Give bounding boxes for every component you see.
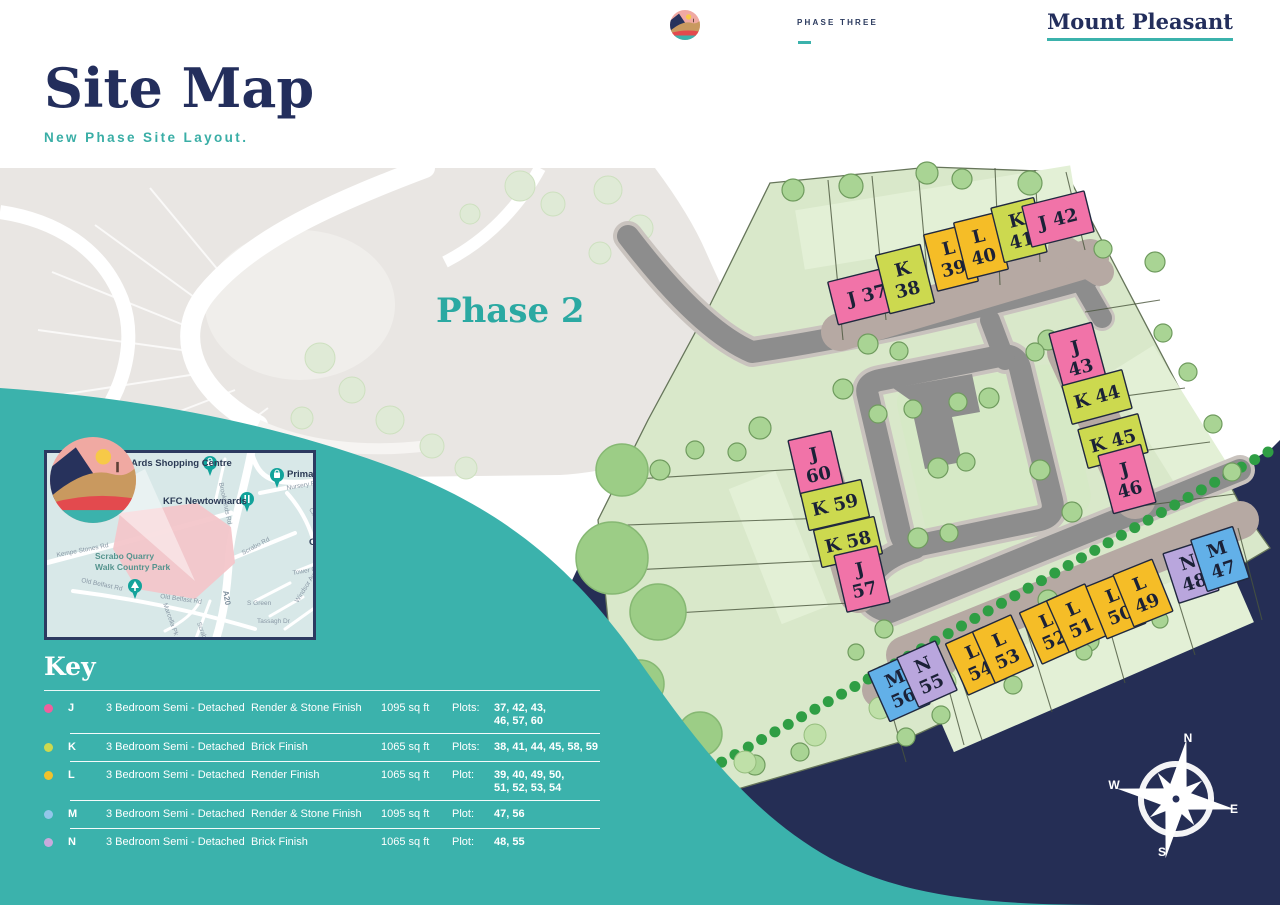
key-description: 3 Bedroom Semi - Detached [106, 836, 251, 849]
hedge-icon [1009, 590, 1020, 601]
map-pin-tree-icon [128, 579, 142, 599]
tree-icon [420, 434, 444, 458]
inset-logo [50, 437, 136, 523]
hedge-icon [1196, 484, 1207, 495]
tree-icon [791, 743, 809, 761]
tree-icon [630, 584, 686, 640]
key-divider [44, 690, 600, 691]
key-description: 3 Bedroom Semi - Detached [106, 741, 251, 754]
tree-icon [979, 388, 999, 408]
key-type-letter: N [68, 836, 106, 849]
brand-logo[interactable] [670, 10, 700, 40]
site-map-page: Phase 2 [0, 0, 1280, 905]
key-heading: Key [44, 652, 600, 681]
tree-icon [1026, 343, 1044, 361]
key-type-letter: L [68, 769, 106, 782]
hedge-icon [1076, 552, 1087, 563]
phase-dash [798, 41, 811, 44]
inset-map-label: Primark [287, 469, 313, 480]
inset-map-label: Tassagh Dr [257, 618, 291, 625]
key-size: 1095 sq ft [381, 702, 452, 715]
key-size: 1065 sq ft [381, 836, 452, 849]
compass-s: S [1158, 845, 1166, 859]
key-plot-numbers: 39, 40, 49, 50, 51, 52, 53, 54 [494, 769, 600, 795]
hedge-icon [983, 605, 994, 616]
key-row-J: J3 Bedroom Semi - DetachedRender & Stone… [44, 695, 600, 734]
tree-icon [897, 728, 915, 746]
inset-map-label: Scrabo Quarry [95, 551, 154, 561]
tree-icon [291, 407, 313, 429]
tree-icon [908, 528, 928, 548]
hedge-icon [809, 704, 820, 715]
key-row-K: K3 Bedroom Semi - DetachedBrick Finish10… [44, 734, 600, 762]
tree-icon [833, 379, 853, 399]
tree-icon [460, 204, 480, 224]
tree-icon [376, 406, 404, 434]
inset-map-label: Walk Country Park [95, 562, 171, 572]
inset-map-label: Old Belfast Rd [81, 577, 124, 593]
key-dot-icon [44, 769, 68, 784]
inset-map-label: KFC Newtownards [163, 496, 247, 507]
hedge-icon [1249, 454, 1260, 465]
key-plots-label: Plot: [452, 808, 494, 821]
key-plot-numbers: 38, 41, 44, 45, 58, 59 [494, 741, 600, 754]
hedge-icon [1263, 447, 1274, 458]
tree-icon [1062, 502, 1082, 522]
key-description: 3 Bedroom Semi - Detached [106, 808, 251, 821]
tree-icon [1094, 240, 1112, 258]
key-type-letter: M [68, 808, 106, 821]
tree-icon [957, 453, 975, 471]
key-dot-icon [44, 702, 68, 717]
key-type-letter: J [68, 702, 106, 715]
hedge-icon [1129, 522, 1140, 533]
inset-map-label: S Green [247, 600, 272, 607]
hedge-icon [1156, 507, 1167, 518]
key-dot-icon [44, 836, 68, 851]
tree-icon [1145, 252, 1165, 272]
hedge-icon [996, 598, 1007, 609]
hedge-icon [769, 726, 780, 737]
brand-wordmark[interactable]: Mount Pleasant [1047, 10, 1233, 41]
tree-icon [749, 417, 771, 439]
hedge-icon [823, 696, 834, 707]
tree-icon [858, 334, 878, 354]
key-finish: Render Finish [251, 769, 381, 782]
key-type-letter: K [68, 741, 106, 754]
tree-icon [455, 457, 477, 479]
tree-icon [869, 405, 887, 423]
hedge-icon [796, 711, 807, 722]
tree-icon [1223, 463, 1241, 481]
compass-n: N [1184, 731, 1193, 745]
key-finish: Brick Finish [251, 741, 381, 754]
hedge-icon [1209, 477, 1220, 488]
tree-icon [782, 179, 804, 201]
tree-icon [339, 377, 365, 403]
tree-icon [940, 524, 958, 542]
hedge-icon [1183, 492, 1194, 503]
tree-icon [734, 751, 756, 773]
key-plots-label: Plot: [452, 836, 494, 849]
tree-icon [1204, 415, 1222, 433]
key-plots-label: Plots: [452, 741, 494, 754]
tree-icon [932, 706, 950, 724]
key-size: 1065 sq ft [381, 769, 452, 782]
key-dot-icon [44, 741, 68, 756]
tree-icon [1179, 363, 1197, 381]
tree-icon [875, 620, 893, 638]
hedge-icon [849, 681, 860, 692]
hedge-icon [783, 719, 794, 730]
key-plot-numbers: 37, 42, 43, 46, 57, 60 [494, 702, 600, 728]
tree-icon [728, 443, 746, 461]
tree-icon [650, 460, 670, 480]
tree-icon [505, 171, 535, 201]
key-description: 3 Bedroom Semi - Detached [106, 702, 251, 715]
tree-icon [541, 192, 565, 216]
page-subtitle: New Phase Site Layout. [44, 130, 314, 145]
map-pin-bag-icon [270, 468, 284, 488]
hedge-icon [756, 734, 767, 745]
tree-icon [904, 400, 922, 418]
tree-icon [305, 343, 335, 373]
hedge-icon [1023, 583, 1034, 594]
phase-label: PHASE THREE [797, 18, 878, 27]
key-plot-numbers: 48, 55 [494, 836, 600, 849]
tree-icon [1018, 171, 1042, 195]
hedge-icon [1063, 560, 1074, 571]
key-dot-icon [44, 808, 68, 823]
page-title: Site Map [44, 58, 314, 118]
tree-icon [848, 644, 864, 660]
hedge-icon [956, 621, 967, 632]
hedge-icon [969, 613, 980, 624]
hedge-icon [1049, 568, 1060, 579]
hedge-icon [1089, 545, 1100, 556]
key-row-N: N3 Bedroom Semi - DetachedBrick Finish10… [44, 829, 600, 857]
key-row-M: M3 Bedroom Semi - DetachedRender & Stone… [44, 801, 600, 829]
tree-icon [596, 444, 648, 496]
hedge-icon [1143, 515, 1154, 526]
tree-icon [576, 522, 648, 594]
hedge-icon [1116, 530, 1127, 541]
tree-icon [686, 441, 704, 459]
inset-map-label: Gra [309, 537, 313, 548]
hedge-icon [836, 689, 847, 700]
tree-icon [890, 342, 908, 360]
tree-icon [916, 162, 938, 184]
tree-icon [928, 458, 948, 478]
key-finish: Render & Stone Finish [251, 808, 381, 821]
key-row-L: L3 Bedroom Semi - DetachedRender Finish1… [44, 762, 600, 801]
tree-icon [949, 393, 967, 411]
tree-icon [1154, 324, 1172, 342]
hedge-icon [1103, 537, 1114, 548]
key-size: 1065 sq ft [381, 741, 452, 754]
key-finish: Brick Finish [251, 836, 381, 849]
hedge-icon [943, 628, 954, 639]
inset-map-label: Ards Shopping Centre [131, 458, 232, 469]
key-plots-label: Plots: [452, 702, 494, 715]
compass-w: W [1108, 778, 1120, 792]
key-plots-label: Plot: [452, 769, 494, 782]
tree-icon [589, 242, 611, 264]
brand-underline [1047, 38, 1233, 41]
key-plot-numbers: 47, 56 [494, 808, 600, 821]
tree-icon [952, 169, 972, 189]
phase2-label: Phase 2 [436, 291, 585, 331]
tree-icon [1030, 460, 1050, 480]
hedge-icon [1169, 499, 1180, 510]
tree-icon [839, 174, 863, 198]
key-size: 1095 sq ft [381, 808, 452, 821]
key-finish: Render & Stone Finish [251, 702, 381, 715]
key-description: 3 Bedroom Semi - Detached [106, 769, 251, 782]
hedge-icon [1036, 575, 1047, 586]
tree-icon [804, 724, 826, 746]
tree-icon [594, 176, 622, 204]
compass-e: E [1230, 802, 1238, 816]
key-panel: Key J3 Bedroom Semi - DetachedRender & S… [44, 652, 600, 857]
brand-name: Mount Pleasant [1047, 10, 1233, 34]
